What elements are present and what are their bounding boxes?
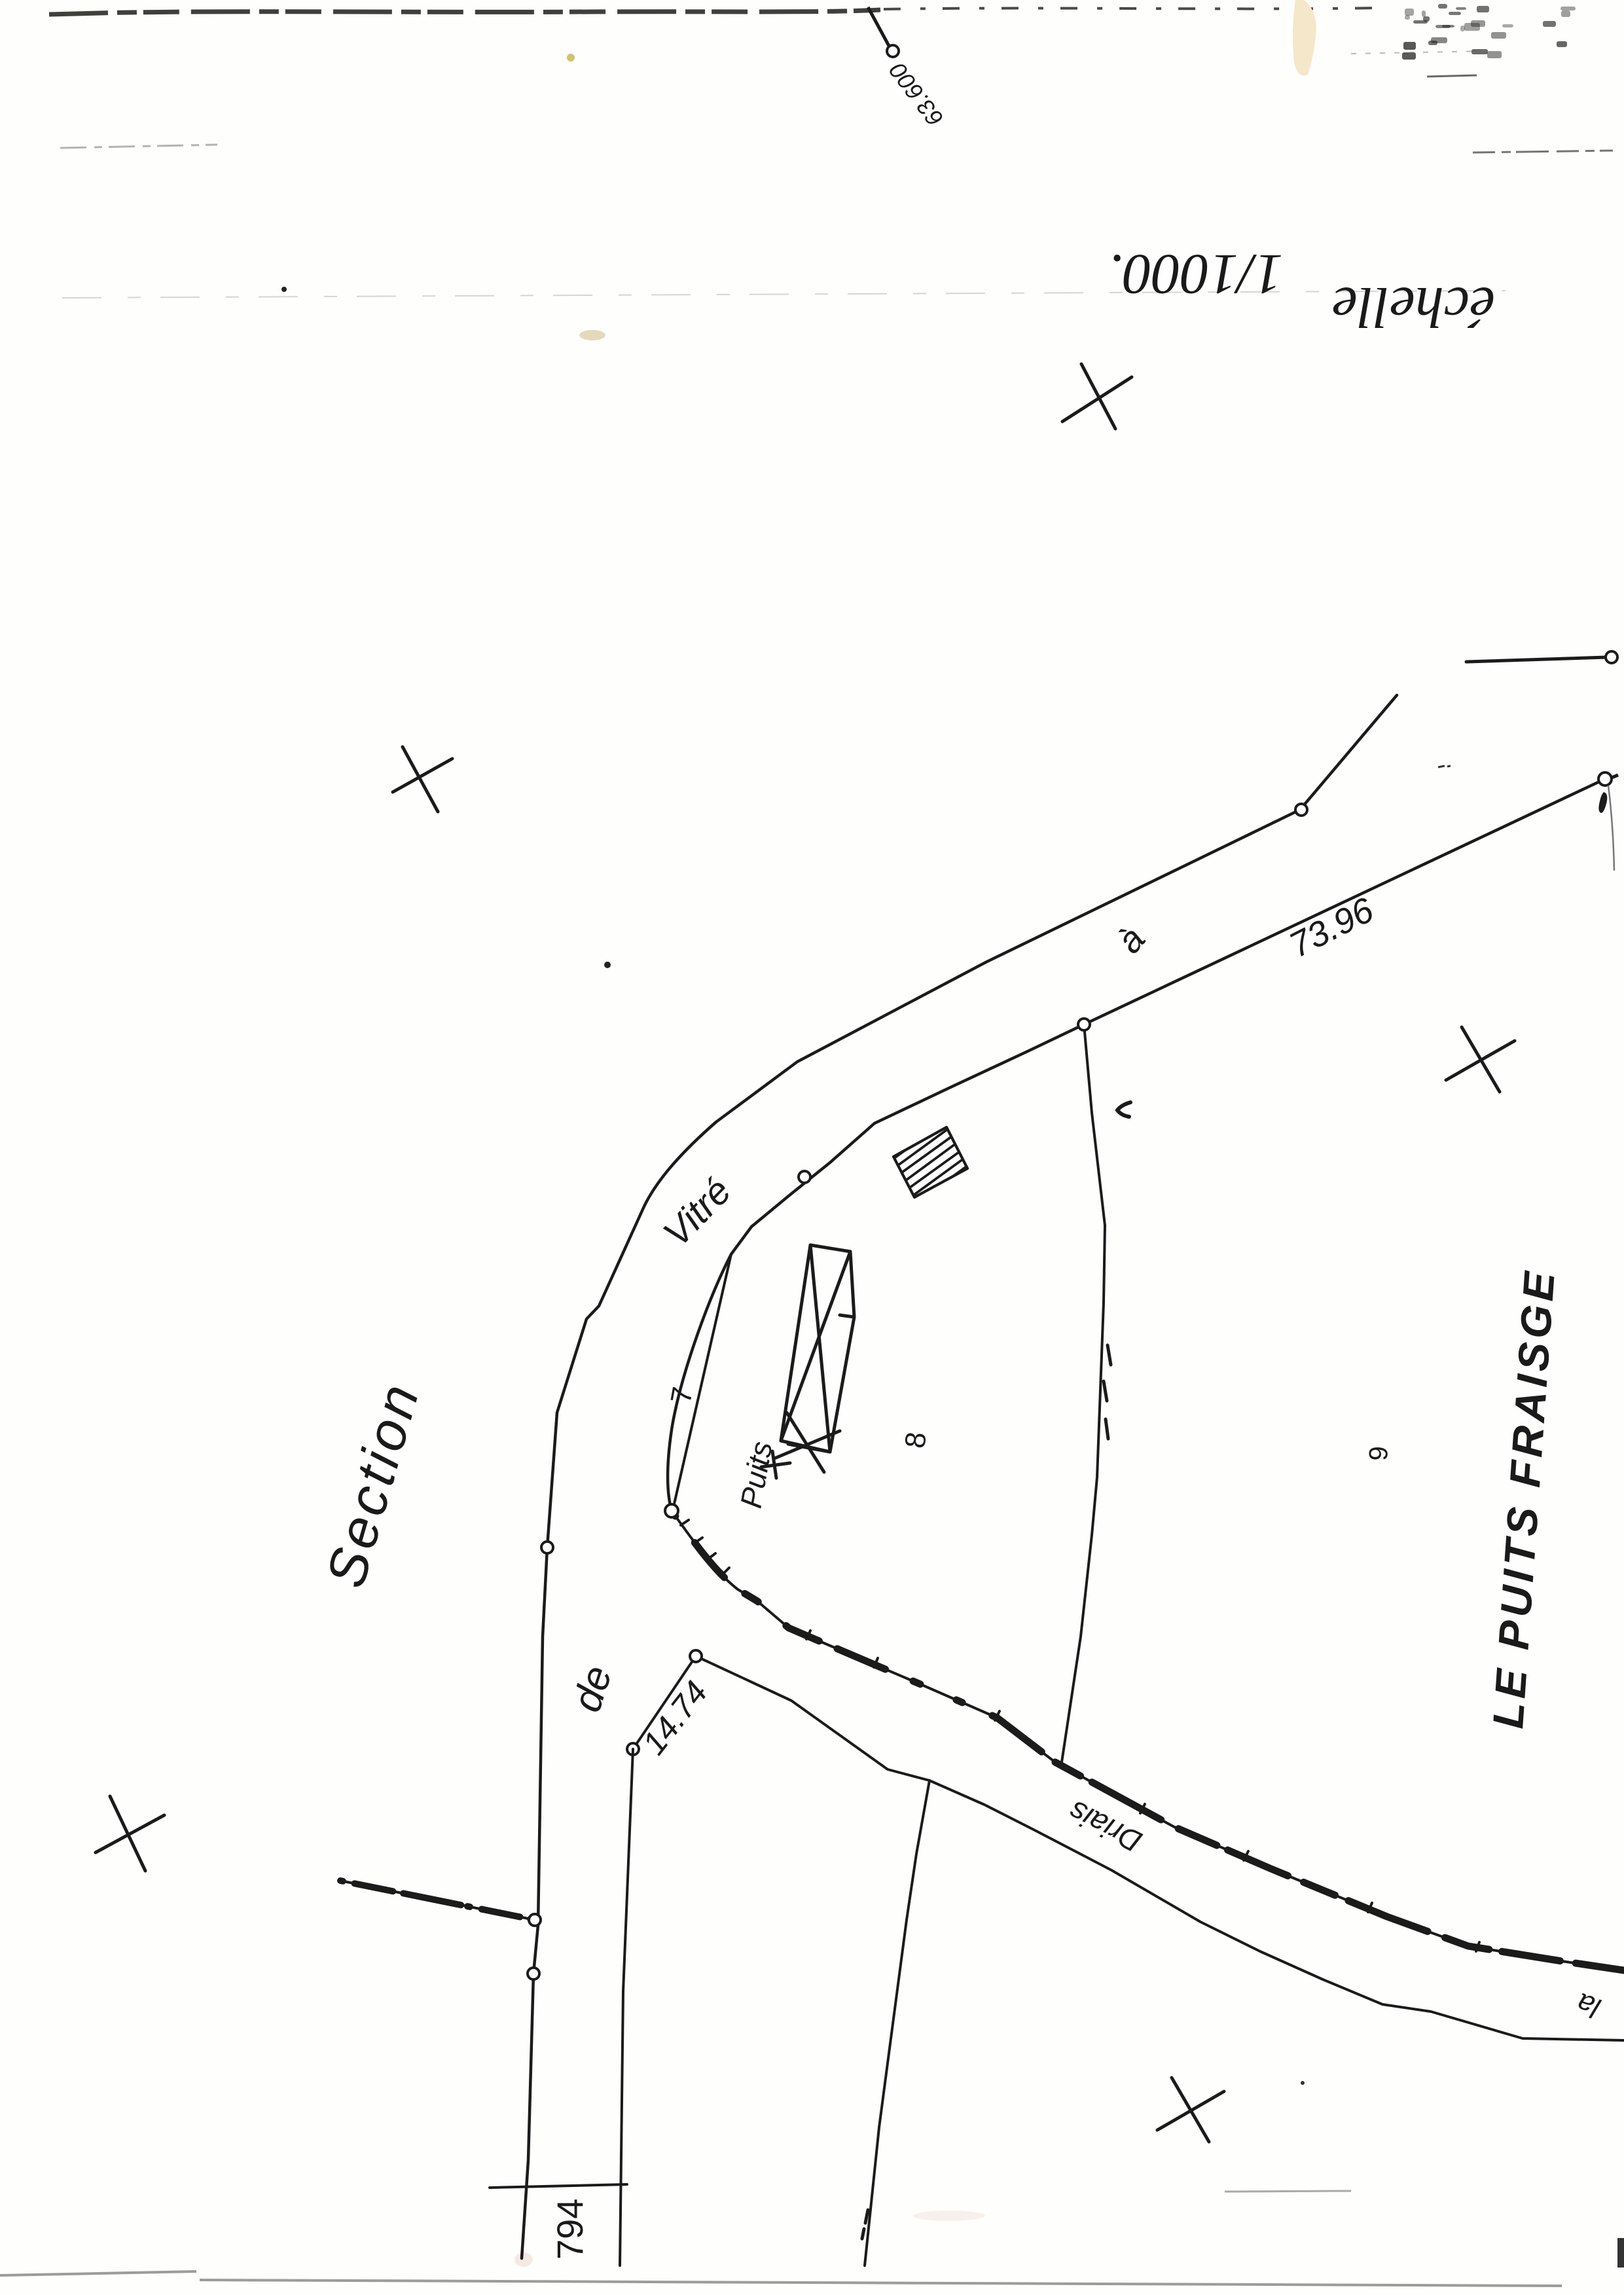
- svg-text:794: 794: [549, 2199, 590, 2260]
- svg-text:échelle: échelle: [1332, 275, 1495, 338]
- svg-text:1/1000.: 1/1000.: [1109, 242, 1283, 306]
- svg-text:9: 9: [1364, 1446, 1394, 1462]
